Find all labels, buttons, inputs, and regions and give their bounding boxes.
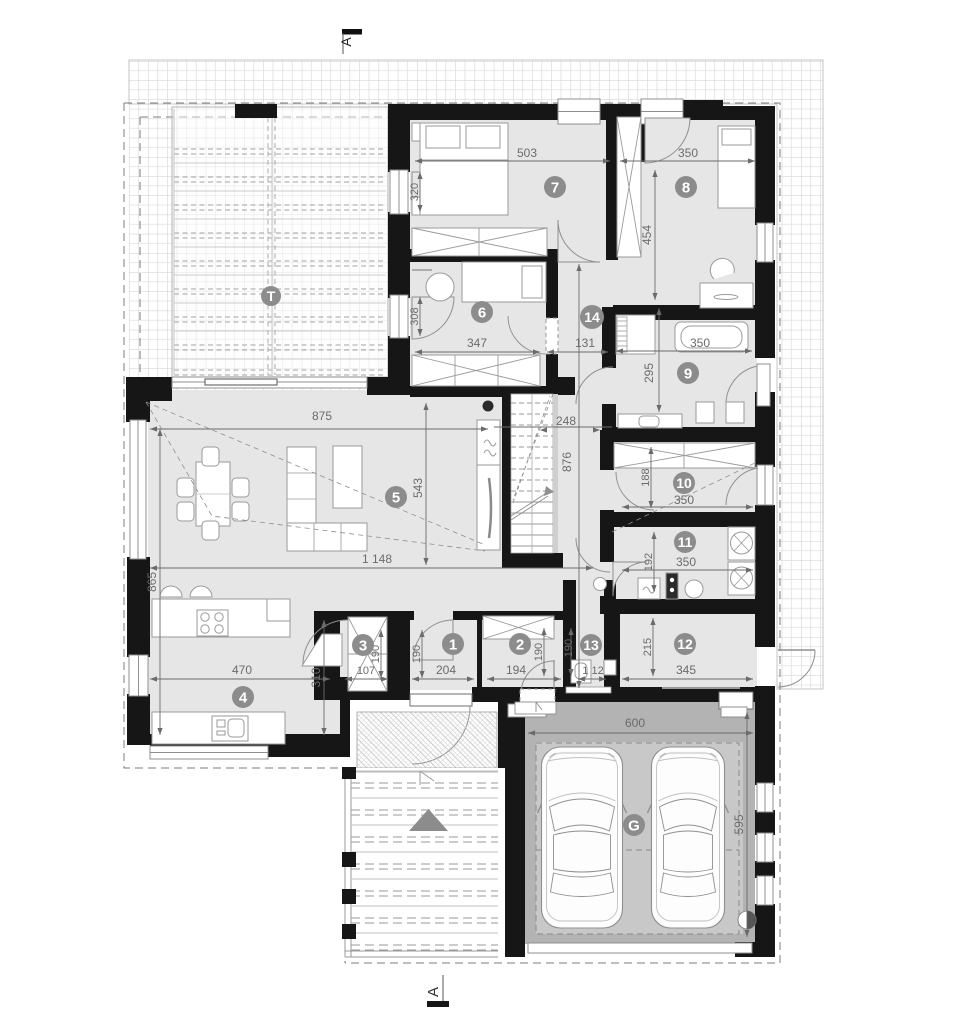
svg-text:543: 543 <box>411 478 425 498</box>
svg-text:875: 875 <box>312 409 332 423</box>
svg-text:865: 865 <box>145 572 159 592</box>
svg-text:9: 9 <box>684 365 692 382</box>
svg-text:3: 3 <box>359 637 367 654</box>
svg-text:310: 310 <box>309 667 323 687</box>
svg-text:308: 308 <box>409 307 421 325</box>
svg-text:215: 215 <box>642 638 654 656</box>
svg-text:T: T <box>267 288 276 304</box>
svg-text:350: 350 <box>690 336 710 350</box>
svg-text:876: 876 <box>560 452 574 472</box>
svg-text:190: 190 <box>411 645 423 663</box>
svg-text:503: 503 <box>517 146 537 160</box>
svg-text:350: 350 <box>674 493 694 507</box>
svg-text:192: 192 <box>643 553 655 571</box>
svg-text:347: 347 <box>467 336 487 350</box>
svg-text:12: 12 <box>677 636 693 652</box>
svg-text:131: 131 <box>575 336 595 350</box>
svg-text:190: 190 <box>533 643 545 661</box>
svg-text:107: 107 <box>357 665 375 677</box>
svg-text:6: 6 <box>478 304 486 321</box>
svg-text:454: 454 <box>640 225 654 245</box>
svg-text:1 148: 1 148 <box>362 552 392 566</box>
svg-text:350: 350 <box>678 146 698 160</box>
svg-text:1 12: 1 12 <box>582 665 603 677</box>
svg-text:7: 7 <box>551 179 559 196</box>
svg-text:470: 470 <box>232 663 252 677</box>
svg-text:1: 1 <box>449 636 457 653</box>
svg-text:4: 4 <box>239 689 248 706</box>
svg-text:248: 248 <box>556 414 576 428</box>
svg-text:295: 295 <box>642 363 656 383</box>
svg-text:595: 595 <box>732 814 746 834</box>
svg-text:G: G <box>628 817 640 834</box>
svg-text:600: 600 <box>625 716 645 730</box>
svg-text:350: 350 <box>676 555 696 569</box>
svg-text:188: 188 <box>640 468 652 486</box>
svg-text:13: 13 <box>583 637 599 653</box>
svg-text:204: 204 <box>436 663 456 677</box>
svg-text:5: 5 <box>392 489 400 506</box>
svg-text:A: A <box>425 987 442 997</box>
svg-text:A: A <box>338 37 354 47</box>
svg-text:11: 11 <box>678 534 693 550</box>
svg-text:194: 194 <box>506 663 526 677</box>
svg-text:320: 320 <box>409 183 421 201</box>
svg-text:345: 345 <box>676 663 696 677</box>
svg-text:2: 2 <box>516 636 524 653</box>
svg-text:14: 14 <box>584 309 600 325</box>
svg-text:190: 190 <box>563 639 575 657</box>
svg-text:8: 8 <box>682 179 690 196</box>
svg-text:10: 10 <box>676 475 692 491</box>
